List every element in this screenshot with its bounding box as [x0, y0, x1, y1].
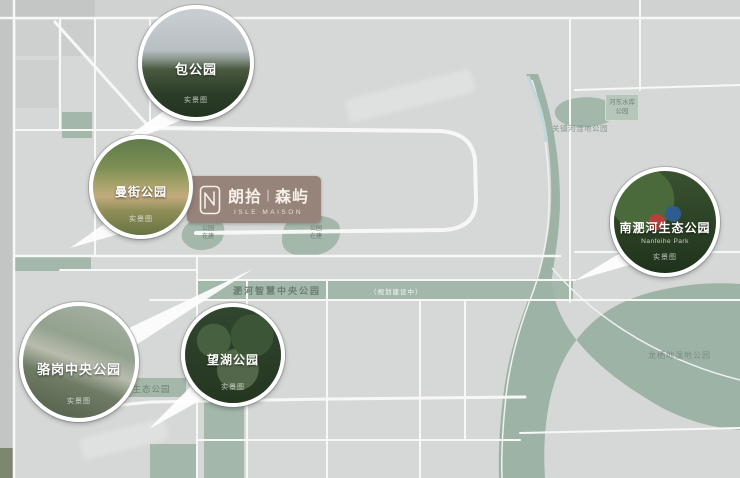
- manjie-park-caption: 实景图: [93, 214, 189, 224]
- blob-left-line2: 在建: [188, 234, 228, 242]
- label-park-blob-right: 公园 在建: [292, 226, 340, 242]
- luogang-park-label: 骆岗中央公园: [23, 359, 135, 378]
- label-guanzhenhe-wetland-park: 关镇河湿地公园: [552, 123, 608, 134]
- brand-cn-right: 森屿: [275, 183, 309, 207]
- callout-wanghu-park: 望湖公园 实景图: [181, 303, 285, 407]
- park-block-small: [62, 112, 92, 138]
- label-hedong-reservoir-park: 河东水库 公园: [605, 94, 639, 121]
- nanfeihe-park-caption: 实景图: [614, 252, 716, 262]
- blob-right-line2: 在建: [292, 234, 340, 242]
- brand-monogram-icon: [199, 185, 221, 215]
- luogang-park-caption: 实景图: [23, 396, 135, 406]
- river: [499, 74, 740, 478]
- callout-luogang-central-park: 骆岗中央公园 实景图: [19, 302, 139, 422]
- brand-cn-left: 朗拾: [228, 183, 262, 207]
- park-strip-bottom-2: [150, 444, 197, 478]
- hedong-line2: 公园: [616, 108, 629, 116]
- blob-left-line1: 公园: [188, 226, 228, 234]
- label-park-blob-left: 公园 在建: [188, 226, 228, 242]
- brand-name-en: ISLE MAISON: [228, 209, 309, 216]
- callout-nanfeihe-eco-park: 南淝河生态公园 Nanfeihe Park 实景图: [610, 167, 720, 277]
- wanghu-park-caption: 实景图: [185, 382, 281, 392]
- callout-bao-park: 包公园 实景图: [138, 5, 254, 121]
- nanfeihe-park-sublabel: Nanfeihe Park: [614, 238, 716, 245]
- nanfeihe-park-label: 南淝河生态公园: [614, 219, 716, 236]
- label-feihe-smart-note: （规划建设中）: [370, 286, 423, 296]
- project-marker: 朗拾∣森屿 ISLE MAISON: [187, 176, 321, 223]
- bao-park-label: 包公园: [142, 59, 250, 78]
- blob-right-line1: 公园: [292, 226, 340, 234]
- river-shape: [499, 74, 740, 478]
- bao-park-caption: 实景图: [142, 95, 250, 105]
- manjie-park-label: 曼街公园: [93, 183, 189, 200]
- label-longqidi-wetland-park: 龙栖地湿地公园: [648, 350, 711, 361]
- label-feihe-smart-central-park: 淝河智慧中央公园: [197, 284, 357, 297]
- wanghu-park-label: 望湖公园: [185, 351, 281, 368]
- location-map: 淝河智慧中央公园 （规划建设中） 淝河生态公园 龙栖地湿地公园 关镇河湿地公园 …: [0, 0, 740, 478]
- brand-name-cn: 朗拾∣森屿: [228, 183, 309, 207]
- hedong-line1: 河东水库: [609, 99, 635, 107]
- callout-manjie-park: 曼街公园 实景图: [89, 135, 193, 239]
- brand-text: 朗拾∣森屿 ISLE MAISON: [228, 183, 309, 216]
- park-strip-left: [15, 257, 91, 271]
- brand-divider: ∣: [265, 188, 272, 202]
